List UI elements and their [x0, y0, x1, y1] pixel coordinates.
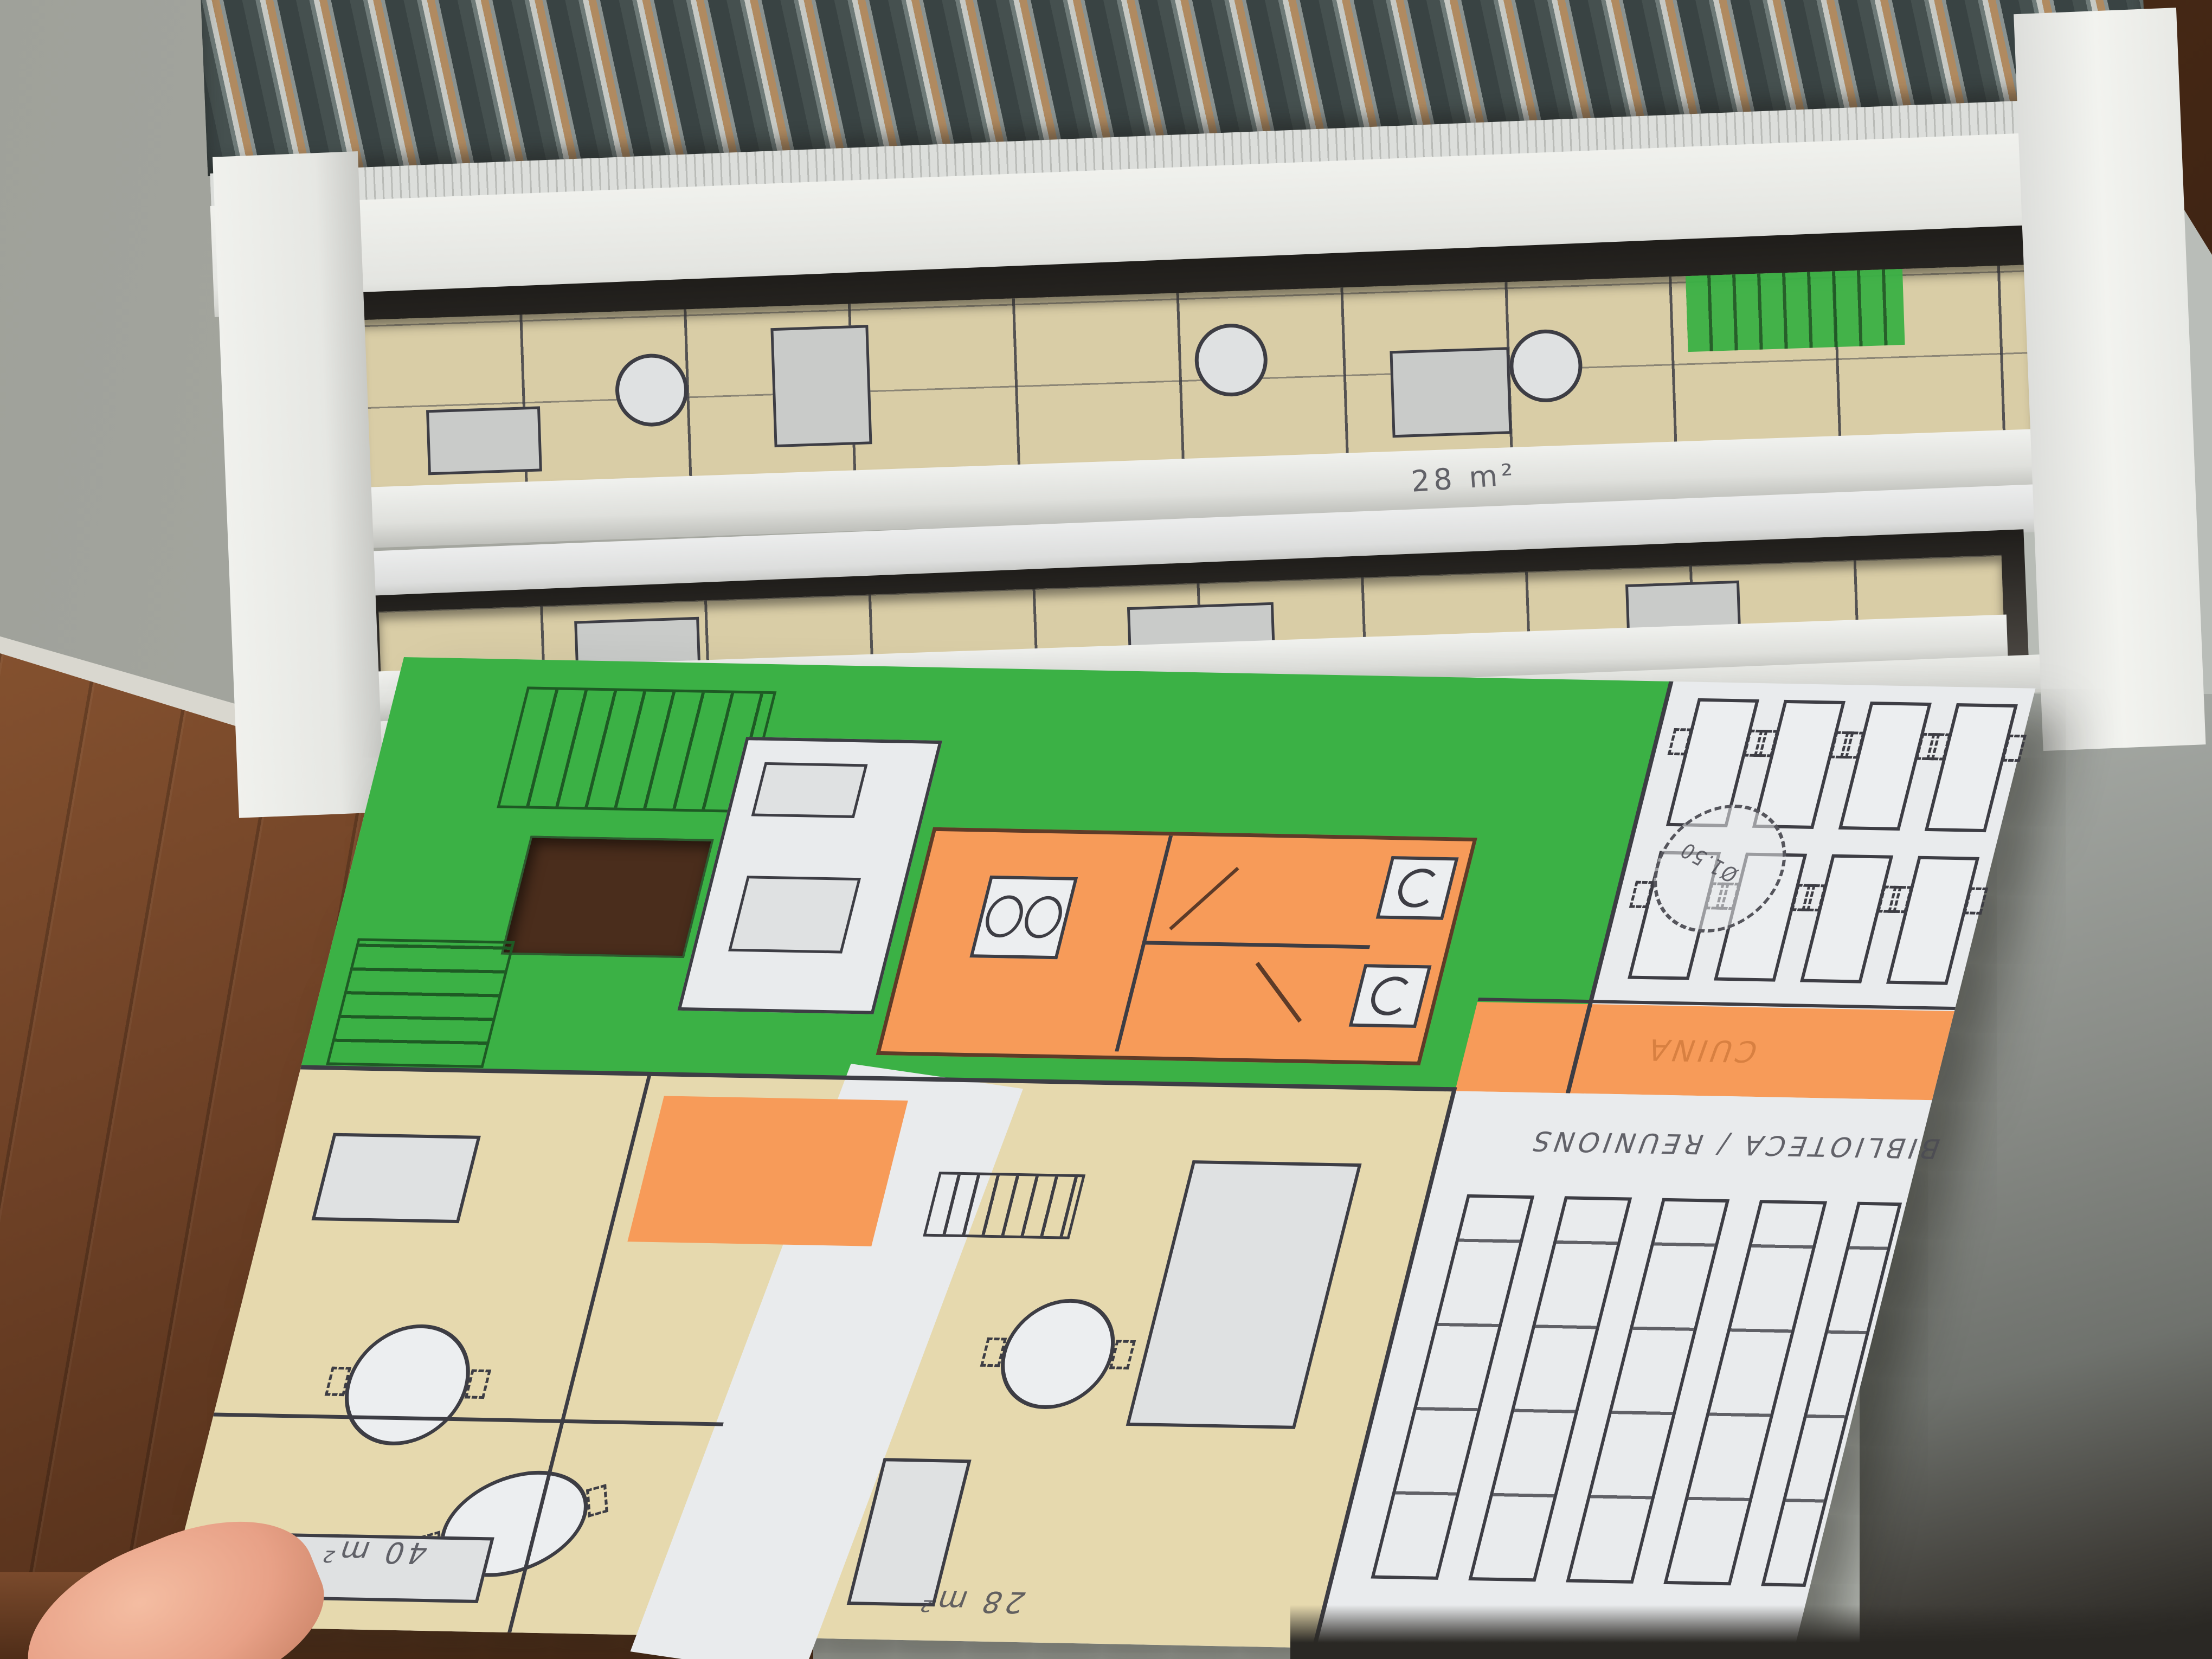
square-table	[1838, 702, 1932, 831]
plan-furniture-block	[770, 325, 872, 447]
wc-fixture	[1376, 856, 1459, 920]
library-label: BIBLIOTECA / REUNIONS	[1524, 1125, 1945, 1164]
area-40-label: 40 m²	[315, 1534, 433, 1570]
wc-fixture	[1349, 964, 1432, 1028]
plan-furniture-block	[728, 876, 861, 953]
wall-line	[1142, 941, 1371, 949]
plan-round-table	[1508, 329, 1583, 403]
kitchen-label: CUINA	[1639, 1032, 1763, 1069]
round-table	[331, 1323, 483, 1446]
plan-round-table	[614, 352, 689, 427]
square-table	[1925, 703, 2018, 832]
square-table	[1800, 854, 1893, 983]
tray-green-stairs	[1686, 269, 1905, 352]
room-wet-orange	[876, 827, 1477, 1065]
furniture-block	[311, 1133, 480, 1223]
door-swing	[1169, 867, 1239, 930]
round-table	[989, 1298, 1127, 1410]
tray-area-label: 28 m²	[1410, 457, 1518, 498]
photo-scene: 28 m²	[0, 0, 2212, 1659]
plan-shadow	[1290, 1605, 2212, 1659]
furniture-block	[1126, 1160, 1362, 1429]
area-28-label: 28 m²	[912, 1584, 1030, 1619]
board-cutout-hole	[501, 836, 714, 958]
wall-line	[507, 1074, 652, 1632]
stair-hatch	[923, 1172, 1085, 1239]
floor-plan-board: Ø1.50 RESTAURANT CUINA BIBLIOTECA / REUN…	[160, 657, 2035, 1657]
door-swing	[1256, 962, 1302, 1023]
diameter-label: Ø1.50	[1675, 837, 1743, 886]
zone-kitchen-orange: CUINA	[1455, 1002, 1954, 1100]
staircase-lower	[326, 938, 515, 1068]
plan-furniture-block	[751, 762, 868, 818]
plan-round-table	[1194, 323, 1269, 397]
plan-furniture-block	[426, 406, 542, 475]
model-left-stile	[213, 151, 384, 818]
model-right-stile	[2014, 8, 2205, 751]
plan-furniture-block	[1390, 347, 1512, 438]
zone-wet-orange-2	[627, 1096, 908, 1246]
wall-line	[213, 1413, 724, 1426]
square-table	[1886, 856, 1979, 985]
double-sink	[969, 876, 1078, 959]
square-table	[1752, 700, 1846, 829]
